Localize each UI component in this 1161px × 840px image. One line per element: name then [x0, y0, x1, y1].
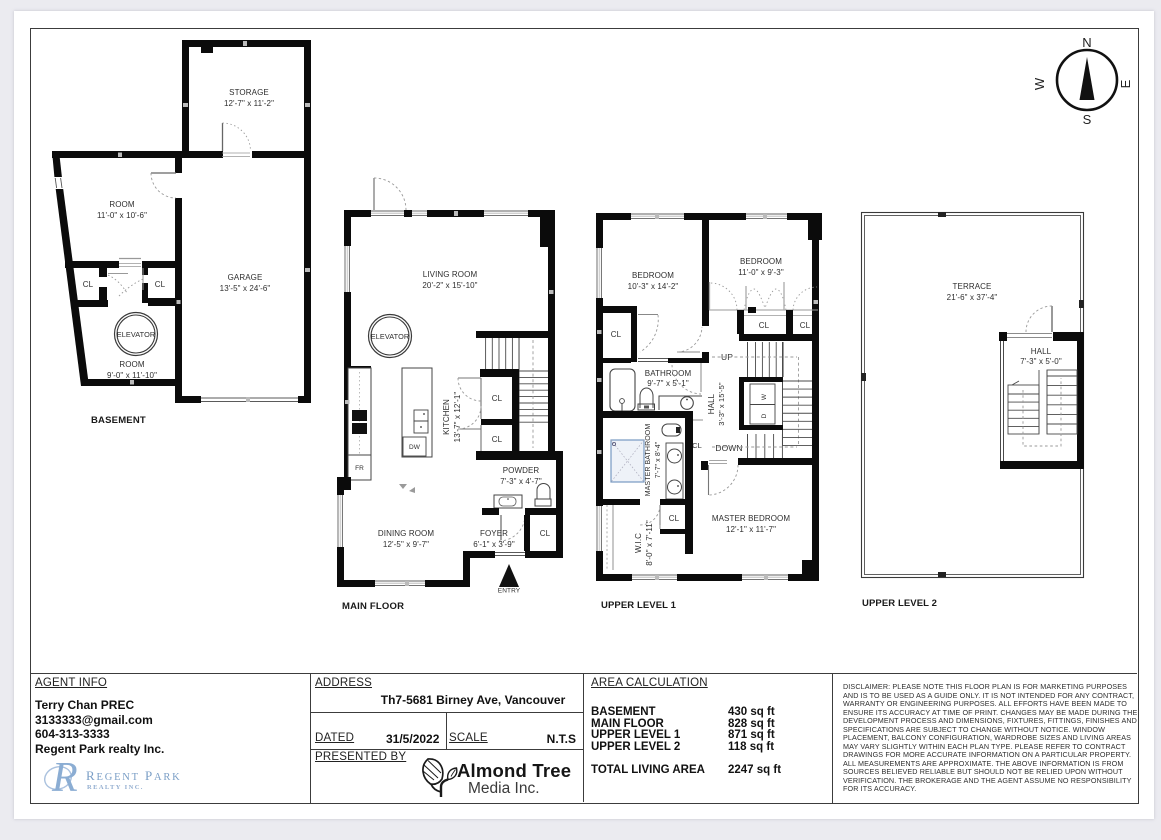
- svg-text:CL: CL: [155, 280, 166, 289]
- svg-text:E: E: [1118, 79, 1133, 88]
- svg-text:GARAGE: GARAGE: [228, 273, 263, 282]
- svg-text:S: S: [1083, 112, 1092, 127]
- svg-text:MAIN FLOOR: MAIN FLOOR: [342, 601, 404, 612]
- svg-text:6'-1" x 3'-9": 6'-1" x 3'-9": [473, 540, 515, 549]
- svg-text:TERRACE: TERRACE: [953, 282, 992, 291]
- svg-text:CL: CL: [611, 330, 622, 339]
- svg-text:W: W: [761, 393, 768, 400]
- svg-text:BEDROOM: BEDROOM: [740, 257, 782, 266]
- svg-text:HALL: HALL: [1031, 347, 1052, 356]
- svg-text:LIVING ROOM: LIVING ROOM: [423, 270, 478, 279]
- svg-text:MASTER BATHROOM: MASTER BATHROOM: [645, 424, 652, 497]
- svg-text:DOWN: DOWN: [715, 443, 742, 453]
- svg-text:13'-5" x 24'-6": 13'-5" x 24'-6": [220, 284, 271, 293]
- svg-text:STORAGE: STORAGE: [229, 88, 269, 97]
- svg-text:DINING ROOM: DINING ROOM: [378, 529, 434, 538]
- svg-text:12'-7" x 11'-2": 12'-7" x 11'-2": [224, 99, 274, 108]
- svg-text:10'-3" x 14'-2": 10'-3" x 14'-2": [628, 282, 679, 291]
- svg-text:12'-5" x 9'-7": 12'-5" x 9'-7": [383, 540, 429, 549]
- svg-text:FR: FR: [355, 465, 364, 472]
- svg-text:CL: CL: [800, 321, 811, 330]
- svg-text:CL: CL: [759, 321, 770, 330]
- svg-text:8'-0" x 7'-11": 8'-0" x 7'-11": [645, 520, 654, 566]
- svg-text:CL: CL: [692, 441, 702, 450]
- svg-text:7'-7" x 8'-4": 7'-7" x 8'-4": [655, 441, 662, 478]
- svg-text:7'-3" x 4'-7": 7'-3" x 4'-7": [500, 477, 542, 486]
- svg-text:ENTRY: ENTRY: [498, 588, 521, 595]
- svg-text:ROOM: ROOM: [109, 200, 135, 209]
- svg-text:KITCHEN: KITCHEN: [442, 399, 451, 435]
- svg-text:CL: CL: [492, 394, 503, 403]
- svg-text:W.I.C: W.I.C: [634, 533, 643, 553]
- svg-text:11'-0" x 9'-3": 11'-0" x 9'-3": [738, 268, 784, 277]
- svg-text:9'-0" x 11'-10": 9'-0" x 11'-10": [107, 371, 157, 380]
- svg-text:CL: CL: [669, 514, 680, 523]
- svg-text:CL: CL: [492, 435, 503, 444]
- svg-text:POWDER: POWDER: [503, 466, 540, 475]
- svg-text:20'-2" x 15'-10": 20'-2" x 15'-10": [422, 281, 477, 290]
- svg-text:BEDROOM: BEDROOM: [632, 271, 674, 280]
- svg-text:CL: CL: [83, 280, 94, 289]
- svg-text:W: W: [1032, 77, 1047, 90]
- svg-text:MASTER BEDROOM: MASTER BEDROOM: [712, 514, 791, 523]
- svg-text:DW: DW: [409, 444, 421, 451]
- svg-text:UPPER LEVEL 2: UPPER LEVEL 2: [862, 598, 937, 609]
- svg-text:7'-3" x 5'-0": 7'-3" x 5'-0": [1020, 357, 1062, 366]
- svg-text:D: D: [761, 413, 768, 418]
- svg-text:11'-0" x 10'-6": 11'-0" x 10'-6": [97, 211, 147, 220]
- svg-text:ELEVATOR: ELEVATOR: [371, 332, 410, 341]
- svg-text:UPPER LEVEL 1: UPPER LEVEL 1: [601, 600, 677, 611]
- svg-text:3'-3" x 15'-5": 3'-3" x 15'-5": [717, 382, 726, 426]
- svg-text:21'-6" x 37'-4": 21'-6" x 37'-4": [947, 293, 998, 302]
- svg-text:ROOM: ROOM: [119, 360, 145, 369]
- svg-text:N: N: [1082, 35, 1091, 50]
- svg-text:12'-1" x 11'-7": 12'-1" x 11'-7": [726, 525, 776, 534]
- svg-text:13'-7" x 12'-1": 13'-7" x 12'-1": [453, 392, 462, 443]
- svg-text:BATHROOM: BATHROOM: [645, 369, 692, 378]
- svg-text:BASEMENT: BASEMENT: [91, 415, 146, 426]
- svg-text:ELEVATOR: ELEVATOR: [117, 330, 156, 339]
- svg-text:CL: CL: [540, 529, 551, 538]
- svg-text:FOYER: FOYER: [480, 529, 508, 538]
- svg-text:HALL: HALL: [707, 393, 716, 414]
